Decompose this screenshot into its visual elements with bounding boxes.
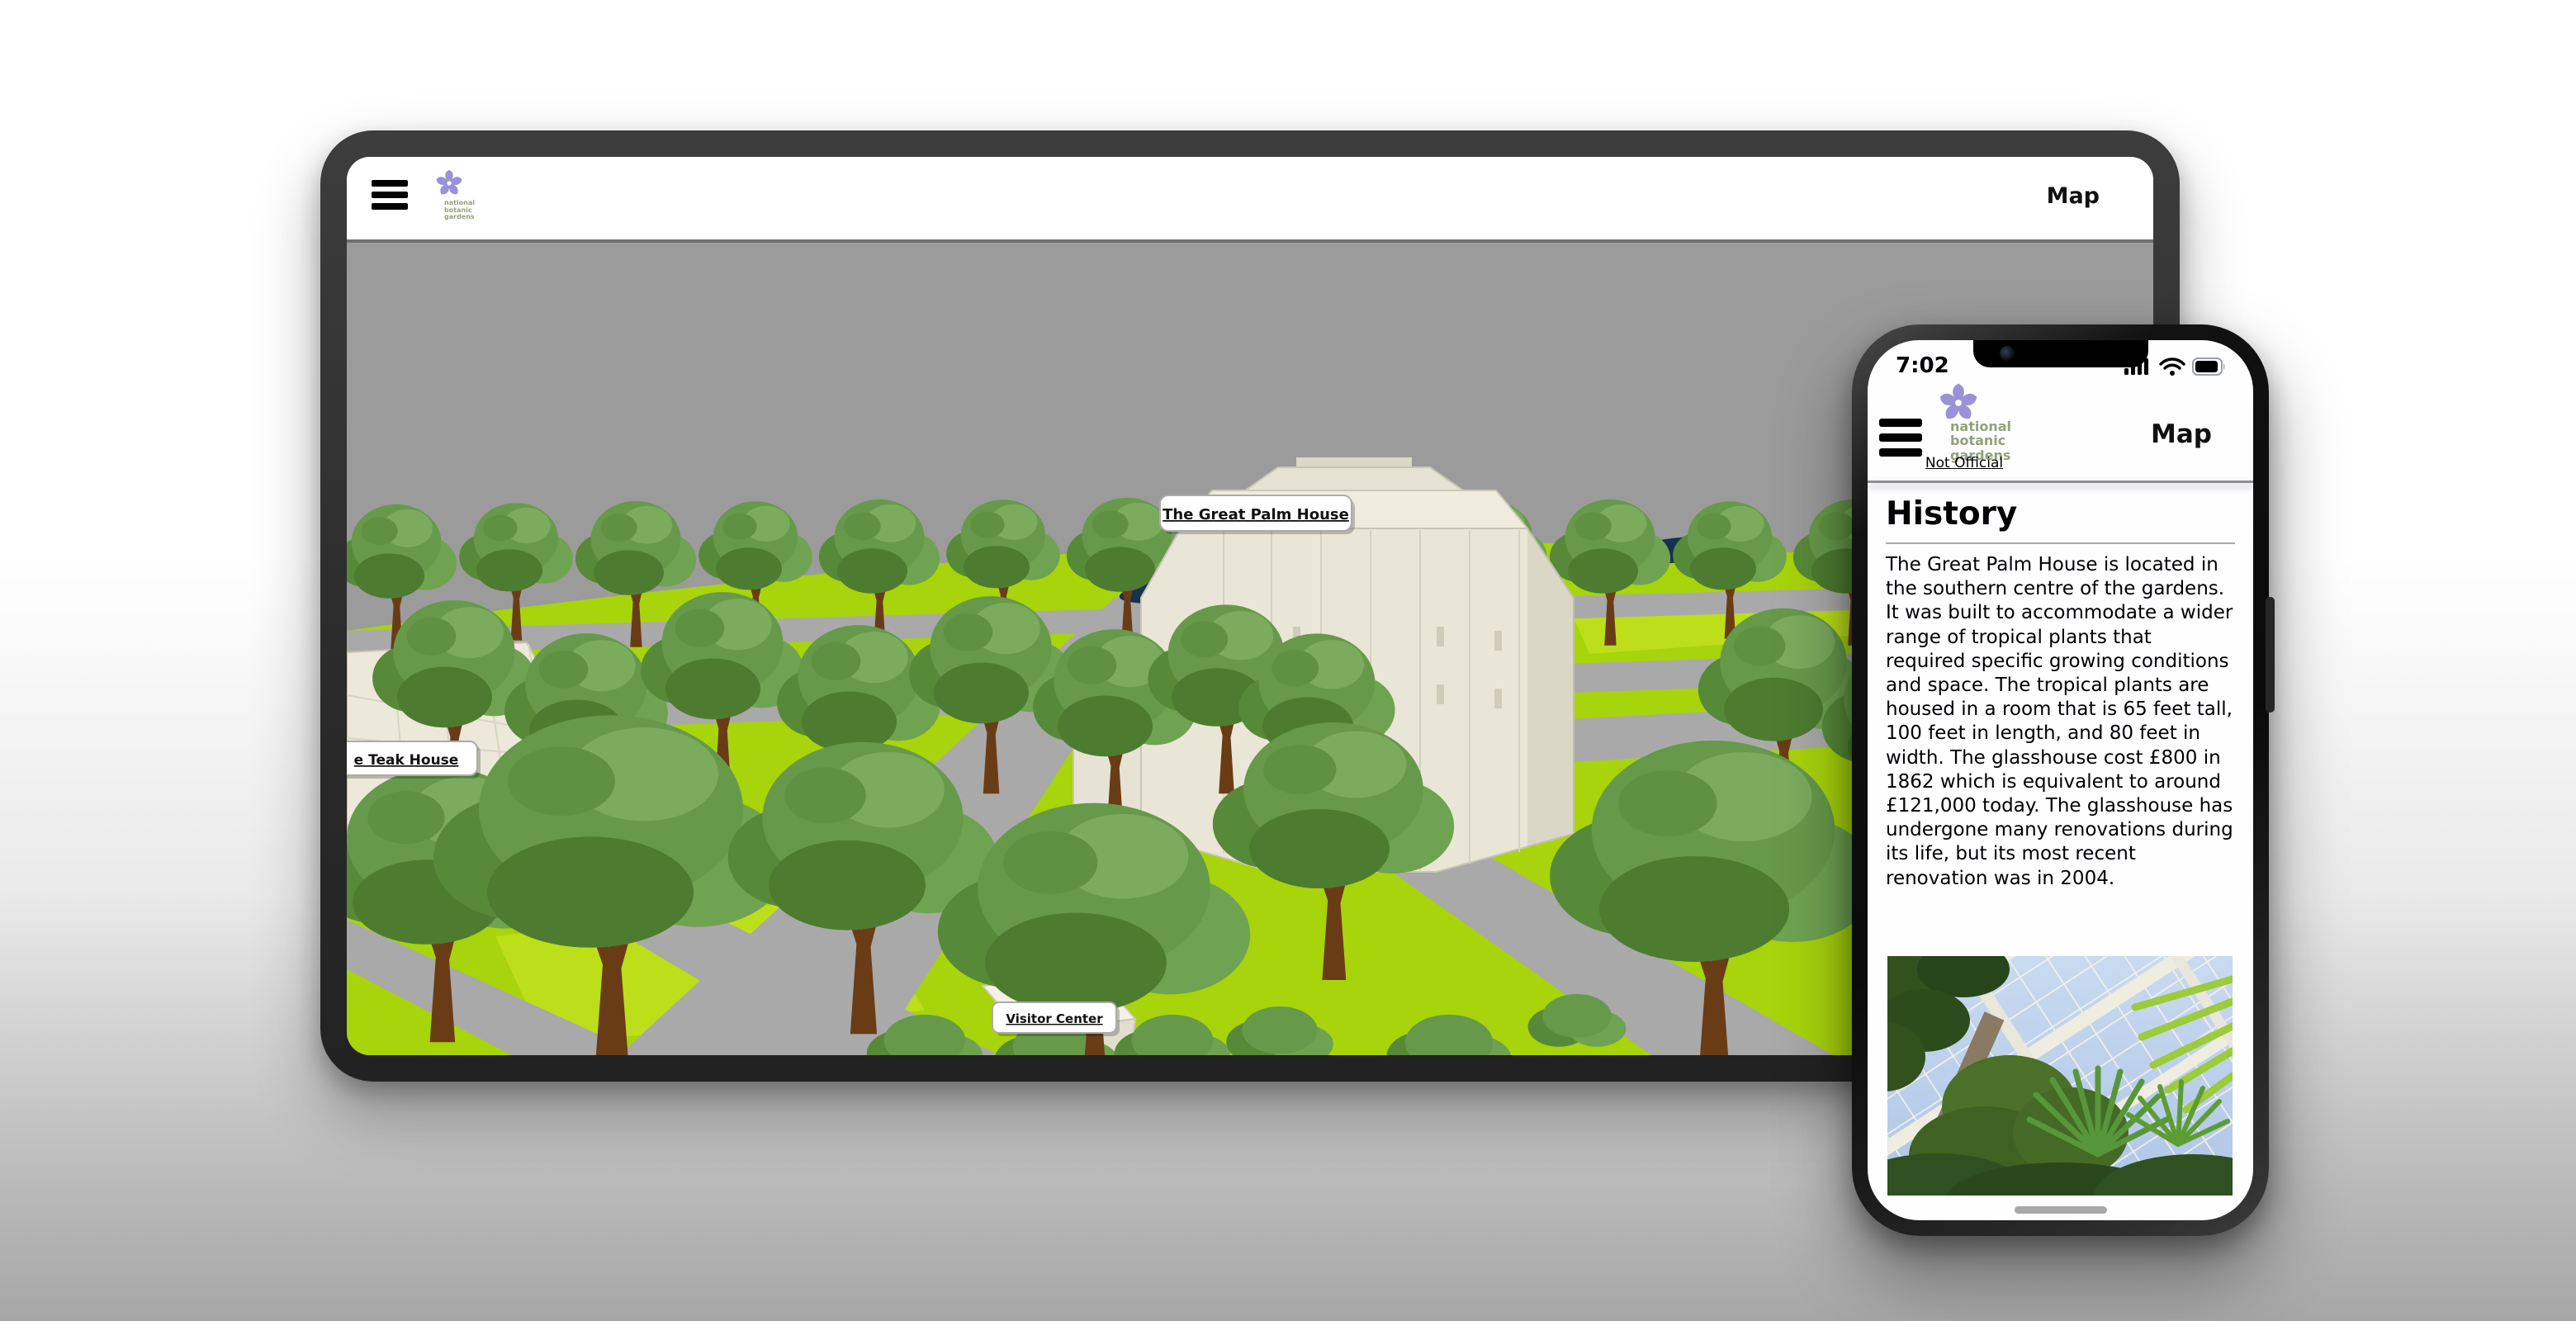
tablet-page-title: Map bbox=[2047, 183, 2100, 209]
botanic-gardens-wordmark: national botanic gardens bbox=[444, 200, 475, 221]
front-camera-icon bbox=[2000, 346, 2015, 361]
map-label-visitor-center[interactable]: Visitor Center bbox=[992, 1002, 1120, 1036]
svg-text:Visitor Center: Visitor Center bbox=[1006, 1011, 1103, 1026]
svg-text:The Great Palm House: The Great Palm House bbox=[1163, 506, 1349, 523]
map-label-great-palm-house[interactable]: The Great Palm House bbox=[1160, 495, 1355, 534]
tablet-app-header: national botanic gardens Map bbox=[347, 157, 2153, 239]
map-label-teak-house[interactable]: e Teak House bbox=[347, 741, 481, 779]
phone-page-title: Map bbox=[2151, 419, 2212, 449]
svg-text:e Teak House: e Teak House bbox=[354, 752, 459, 769]
history-paragraph: The Great Palm House is located in the s… bbox=[1886, 553, 2236, 891]
notch bbox=[1973, 340, 2148, 367]
menu-icon[interactable] bbox=[1879, 419, 1922, 457]
not-official-link[interactable]: Not Official bbox=[1911, 455, 2018, 471]
wifi-icon bbox=[2159, 357, 2185, 376]
phone-device: 7:02 bbox=[1852, 324, 2269, 1236]
home-indicator[interactable] bbox=[2015, 1206, 2107, 1214]
header-divider bbox=[1868, 481, 2253, 483]
glasshouse-interior-photo bbox=[1887, 956, 2233, 1196]
battery-icon bbox=[2192, 357, 2227, 376]
scene-background: national botanic gardens Map bbox=[0, 0, 2576, 1321]
botanic-gardens-flower-icon bbox=[434, 168, 464, 198]
history-heading: History bbox=[1886, 495, 2017, 533]
status-time: 7:02 bbox=[1896, 353, 1949, 378]
power-button[interactable] bbox=[2266, 597, 2275, 713]
menu-icon[interactable] bbox=[372, 180, 408, 210]
phone-screen: 7:02 bbox=[1868, 340, 2253, 1220]
heading-rule bbox=[1886, 542, 2235, 544]
